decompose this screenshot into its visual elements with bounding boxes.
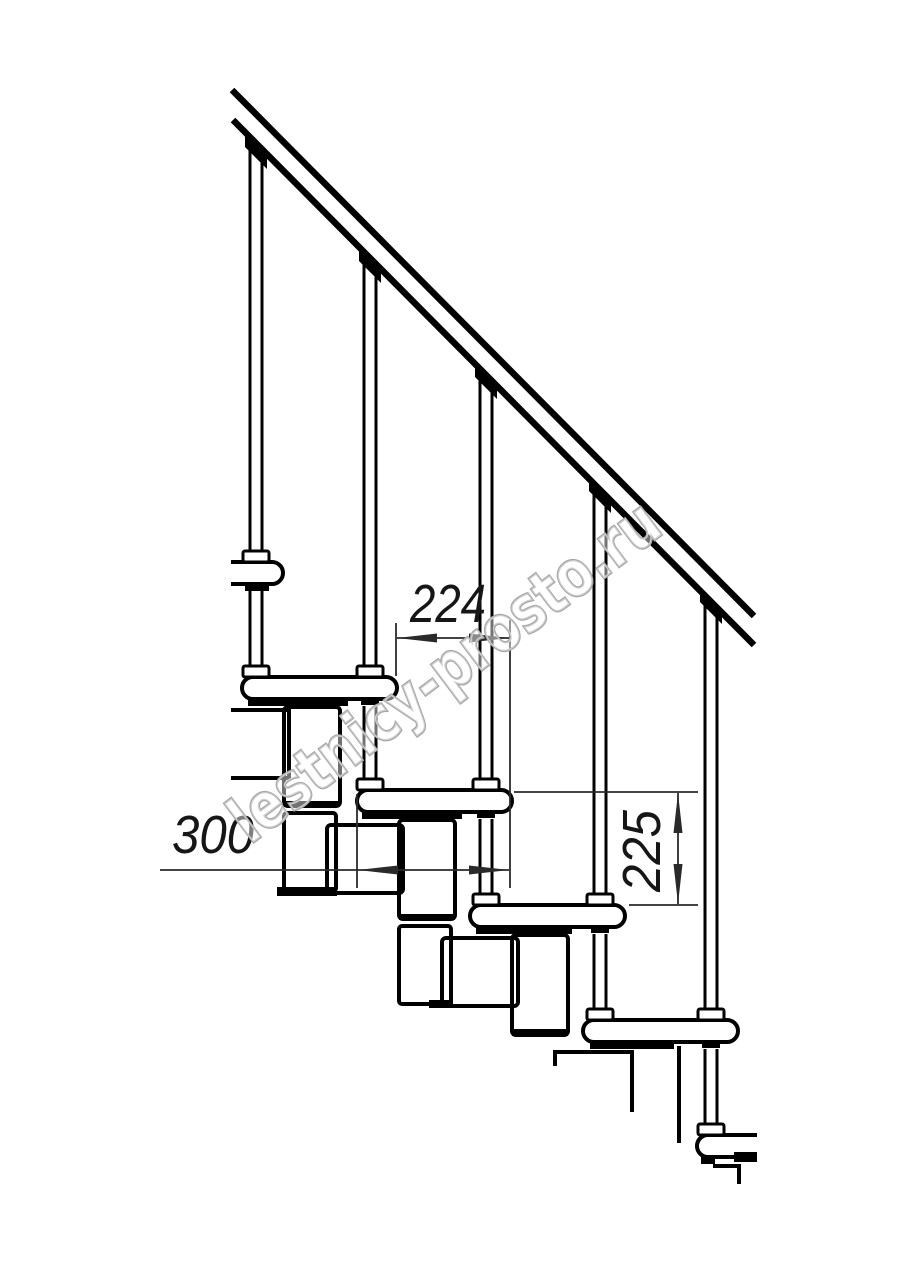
tread-5 [583, 1020, 738, 1042]
arrowhead-down [674, 864, 683, 904]
module-3-base-strip [399, 914, 455, 920]
module-connector-3 [442, 938, 518, 1006]
arrowhead-left [358, 866, 398, 875]
module-connector-2 [327, 825, 403, 893]
module-6-hook [713, 1166, 739, 1184]
tread-1 [231, 562, 283, 584]
tread-4 [470, 905, 625, 927]
staircase-drawing: 224 300 225 lestnicy-prosto.ru [0, 0, 914, 1280]
arrowhead-right [469, 866, 509, 875]
module-connector-4 [555, 1052, 632, 1112]
arrowhead-up [674, 793, 683, 833]
tread-3 [357, 790, 512, 812]
staircase-drawing-page: 224 300 225 lestnicy-prosto.ru [0, 0, 914, 1280]
dim-label-step-rise: 225 [612, 809, 672, 893]
module-4-base-strip [512, 1029, 568, 1036]
